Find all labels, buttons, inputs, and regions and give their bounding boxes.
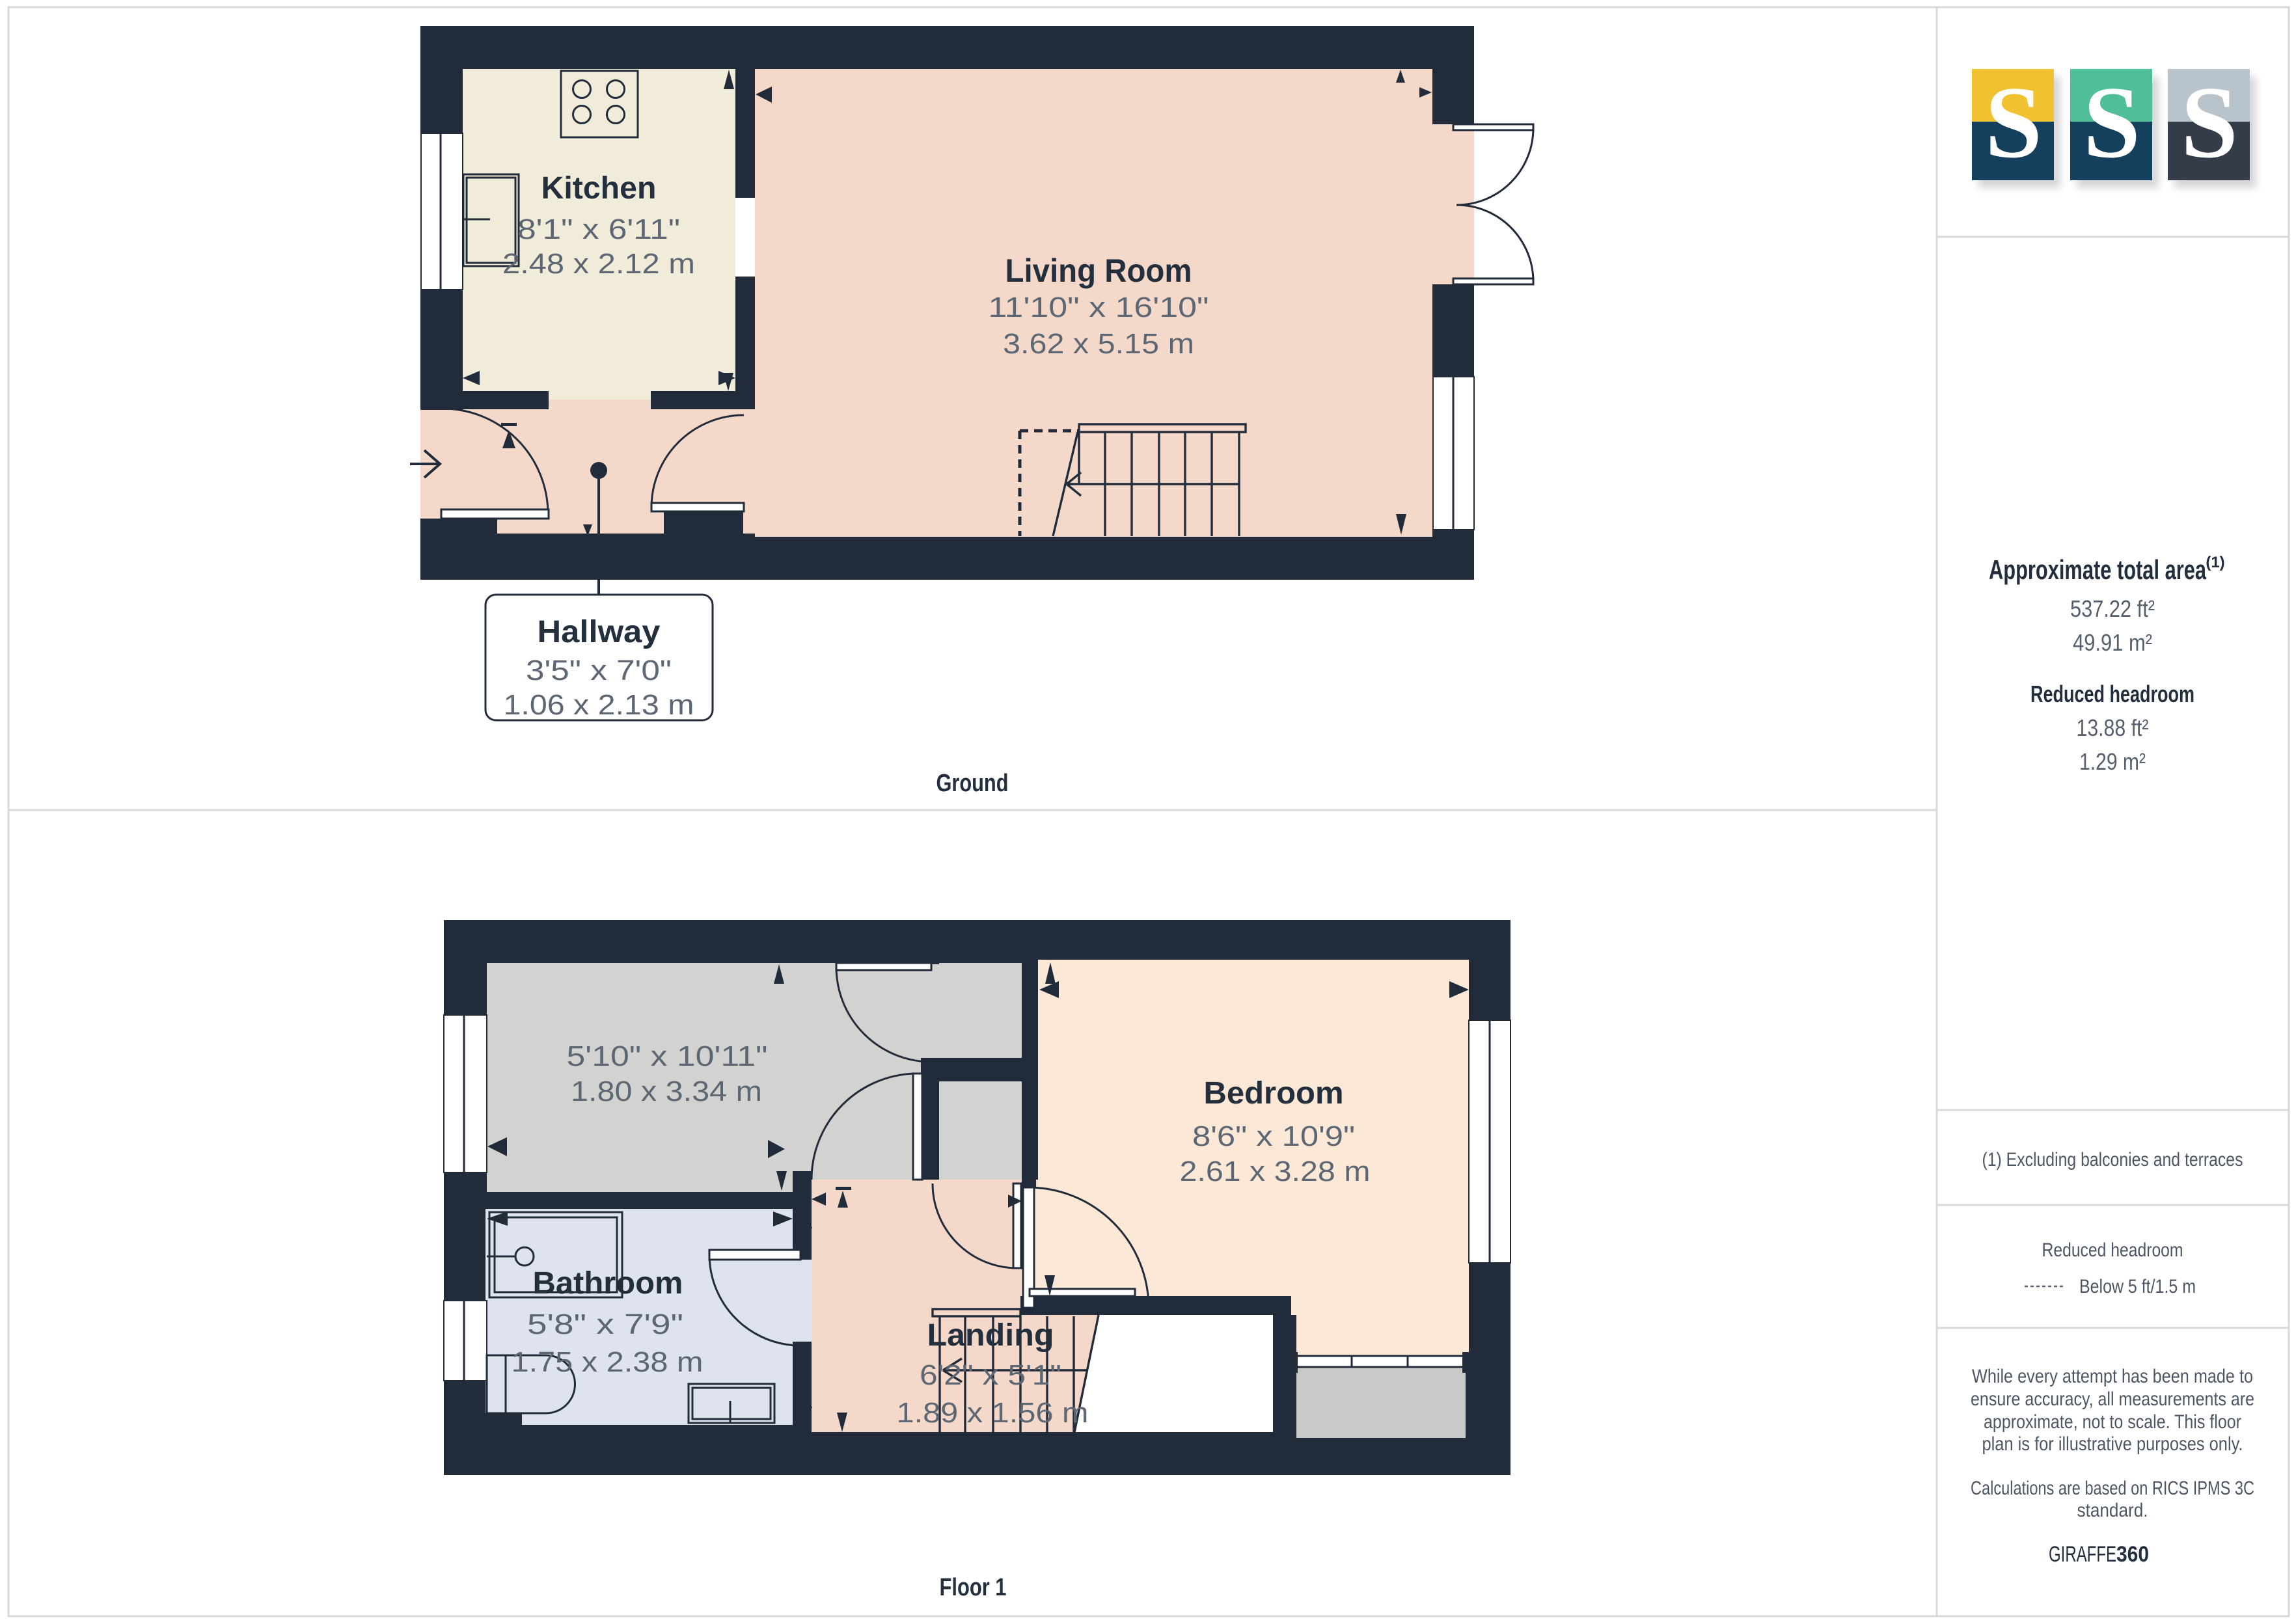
svg-text:5'8" x 7'9": 5'8" x 7'9" xyxy=(527,1308,683,1340)
svg-text:Hallway: Hallway xyxy=(538,615,661,649)
svg-text:3'5" x 7'0": 3'5" x 7'0" xyxy=(526,655,672,686)
svg-text:13.88 ft²: 13.88 ft² xyxy=(2077,714,2149,741)
svg-text:Bedroom: Bedroom xyxy=(1204,1076,1344,1111)
svg-text:GIRAFFE: GIRAFFE xyxy=(2049,1542,2116,1567)
svg-text:2.48 x 2.12 m: 2.48 x 2.12 m xyxy=(502,248,695,280)
svg-text:Ground: Ground xyxy=(936,770,1009,797)
svg-text:2.61 x 3.28 m: 2.61 x 3.28 m xyxy=(1180,1156,1371,1187)
svg-text:(1): (1) xyxy=(2206,554,2224,571)
svg-text:Reduced headroom: Reduced headroom xyxy=(2030,681,2194,707)
svg-text:11'10" x 16'10": 11'10" x 16'10" xyxy=(989,291,1209,323)
svg-text:3.62 x 5.15 m: 3.62 x 5.15 m xyxy=(1003,328,1194,360)
svg-text:Approximate total area: Approximate total area xyxy=(1989,554,2206,585)
svg-text:S: S xyxy=(1985,66,2042,180)
svg-text:Reduced headroom: Reduced headroom xyxy=(2042,1239,2183,1261)
svg-text:S: S xyxy=(2181,66,2238,180)
svg-text:1.80 x 3.34 m: 1.80 x 3.34 m xyxy=(571,1076,762,1107)
svg-text:Floor 1: Floor 1 xyxy=(940,1574,1007,1601)
svg-text:Kitchen: Kitchen xyxy=(541,171,657,206)
svg-text:1.29 m²: 1.29 m² xyxy=(2079,748,2146,775)
svg-text:Living Room: Living Room xyxy=(1005,252,1192,289)
svg-text:537.22 ft²: 537.22 ft² xyxy=(2070,595,2155,622)
svg-text:plan is for illustrative purpo: plan is for illustrative purposes only. xyxy=(1982,1433,2243,1455)
svg-text:Bathroom: Bathroom xyxy=(533,1266,683,1301)
svg-text:ensure accuracy, all measureme: ensure accuracy, all measurements are xyxy=(1971,1388,2254,1410)
svg-text:1.06 x 2.13 m: 1.06 x 2.13 m xyxy=(504,689,694,721)
svg-text:5'10" x 10'11": 5'10" x 10'11" xyxy=(567,1040,768,1072)
svg-text:Landing: Landing xyxy=(927,1318,1054,1353)
svg-text:49.91 m²: 49.91 m² xyxy=(2073,629,2152,656)
svg-text:S: S xyxy=(2083,66,2140,180)
svg-text:(1) Excluding balconies and te: (1) Excluding balconies and terraces xyxy=(1982,1149,2243,1171)
svg-text:8'6" x 10'9": 8'6" x 10'9" xyxy=(1192,1120,1355,1152)
svg-text:1.89 x 1.56 m: 1.89 x 1.56 m xyxy=(897,1397,1089,1429)
svg-text:8'1" x 6'11": 8'1" x 6'11" xyxy=(517,213,680,245)
svg-text:approximate, not to scale. Thi: approximate, not to scale. This floor xyxy=(1984,1411,2241,1433)
svg-text:standard.: standard. xyxy=(2077,1500,2148,1521)
svg-text:360: 360 xyxy=(2116,1542,2149,1567)
svg-text:While every attempt has been m: While every attempt has been made to xyxy=(1972,1366,2253,1387)
svg-text:Calculations are based on RICS: Calculations are based on RICS IPMS 3C xyxy=(1971,1478,2254,1499)
svg-text:1.75 x 2.38 m: 1.75 x 2.38 m xyxy=(512,1346,704,1378)
svg-text:6'2" x 5'1": 6'2" x 5'1" xyxy=(920,1359,1061,1391)
svg-text:Below 5 ft/1.5 m: Below 5 ft/1.5 m xyxy=(2079,1276,2196,1297)
